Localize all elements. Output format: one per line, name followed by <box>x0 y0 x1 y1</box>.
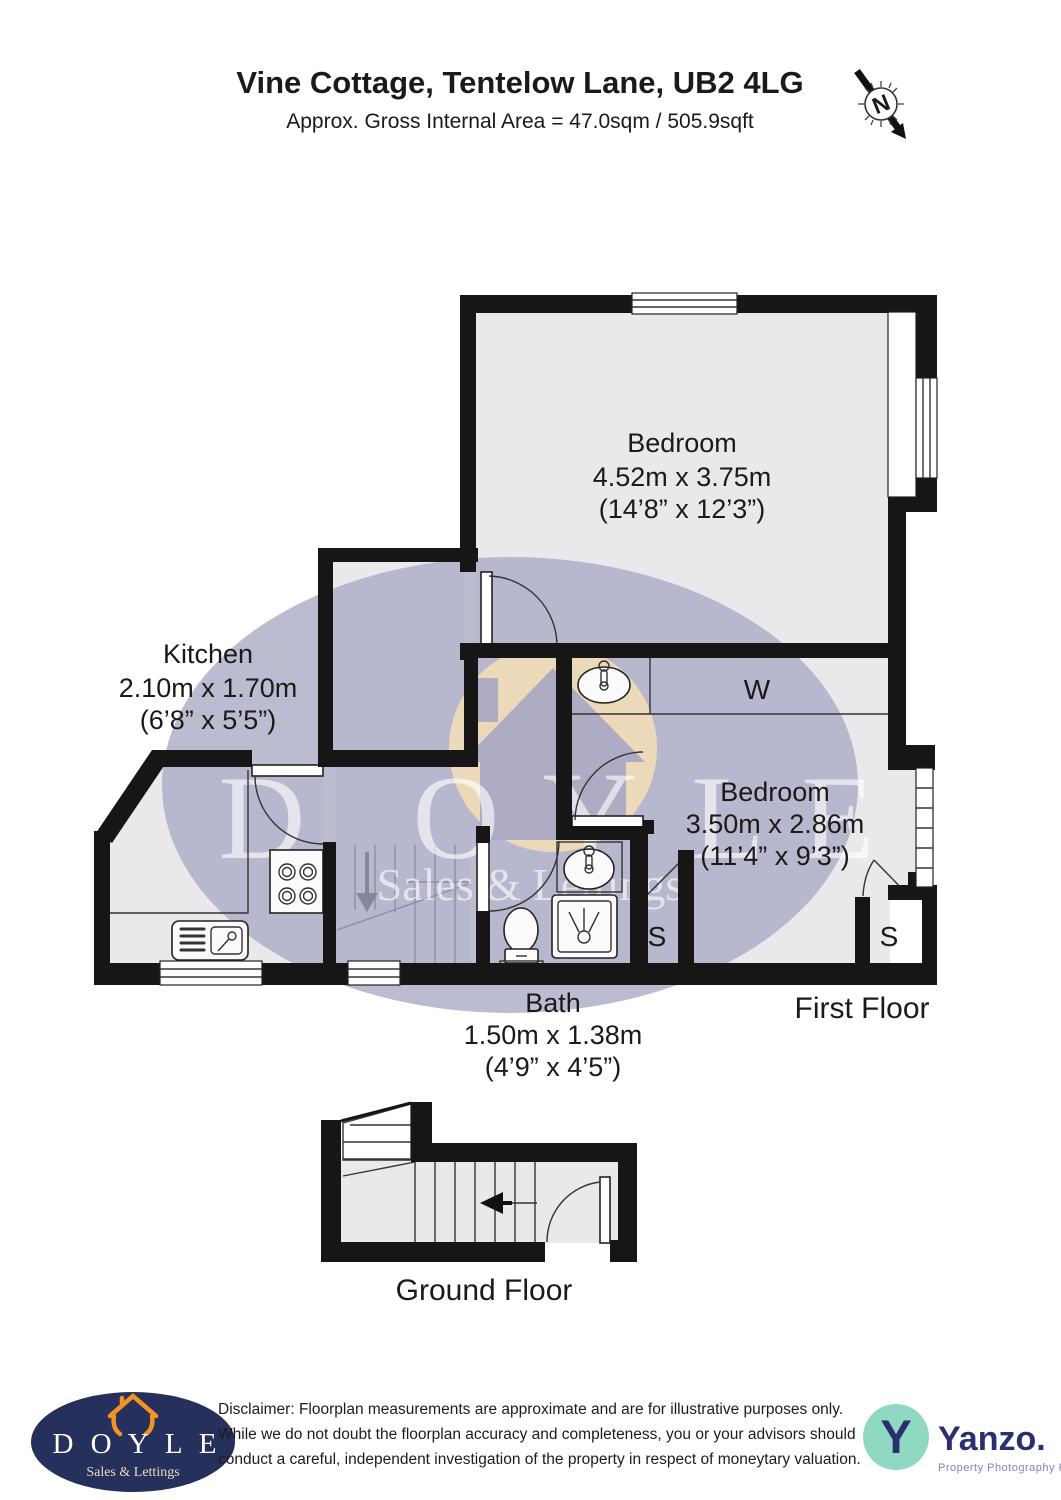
disclaimer-line-3: conduct a careful, independent investiga… <box>218 1451 861 1468</box>
kitchen-imperial: (6’8” x 5’5”) <box>140 705 277 735</box>
ground-hall-floor <box>341 1160 618 1243</box>
bedroom1-name: Bedroom <box>627 428 737 458</box>
kitchen-sink <box>172 921 248 960</box>
bedroom1-metric: 4.52m x 3.75m <box>593 462 772 492</box>
north-arrow: N <box>857 71 906 139</box>
kitchen-window-1 <box>160 961 262 985</box>
bedroom1-top-window <box>632 293 737 314</box>
kitchen-window-2 <box>348 961 400 985</box>
yanzo-monogram: Y <box>880 1410 911 1463</box>
storage1-label: S <box>648 921 667 952</box>
bedroom2-floor-window-strip <box>890 770 916 885</box>
doyle-logo-tagline: Sales & Lettings <box>86 1465 179 1480</box>
yanzo-tagline: Property Photography Reimagined <box>938 1462 1061 1474</box>
bath-imperial: (4’9” x 4’5”) <box>485 1052 622 1082</box>
bath-name: Bath <box>525 988 581 1018</box>
page-title: Vine Cottage, Tentelow Lane, UB2 4LG <box>236 65 803 100</box>
hob <box>270 850 323 913</box>
disclaimer-line-2: While we do not doubt the floorplan accu… <box>218 1426 856 1443</box>
bath-metric: 1.50m x 1.38m <box>464 1020 643 1050</box>
floorplan-page: D O Y L E Sales & Lettings <box>0 0 1061 1500</box>
kitchen-name: Kitchen <box>163 639 253 669</box>
page-subtitle: Approx. Gross Internal Area = 47.0sqm / … <box>286 110 754 133</box>
shower <box>552 895 617 958</box>
first-floor-label: First Floor <box>795 992 930 1025</box>
bedroom1-imperial: (14’8” x 12’3”) <box>599 494 766 524</box>
bedroom2-metric: 3.50m x 2.86m <box>686 809 865 839</box>
doyle-logo: D O Y L E Sales & Lettings <box>31 1392 235 1492</box>
bedroom2-imperial: (11’4” x 9’3”) <box>700 841 850 871</box>
bedroom2-name: Bedroom <box>720 777 830 807</box>
yanzo-name: Yanzo. <box>938 1420 1046 1458</box>
wardrobe-label: W <box>744 674 771 705</box>
kitchen-metric: 2.10m x 1.70m <box>119 673 298 703</box>
disclaimer-line-1: Disclaimer: Floorplan measurements are a… <box>218 1401 843 1418</box>
storage2-label: S <box>880 921 899 952</box>
disclaimer: Disclaimer: Floorplan measurements are a… <box>218 1401 861 1468</box>
floorplan-canvas: D O Y L E Sales & Lettings <box>0 0 1061 1500</box>
bedroom2-side-window <box>916 768 933 887</box>
doyle-logo-letters: D O Y L E <box>52 1428 221 1460</box>
yanzo-logo: Y Yanzo. Property Photography Reimagined <box>863 1404 1061 1474</box>
ground-floor-label: Ground Floor <box>396 1274 573 1307</box>
